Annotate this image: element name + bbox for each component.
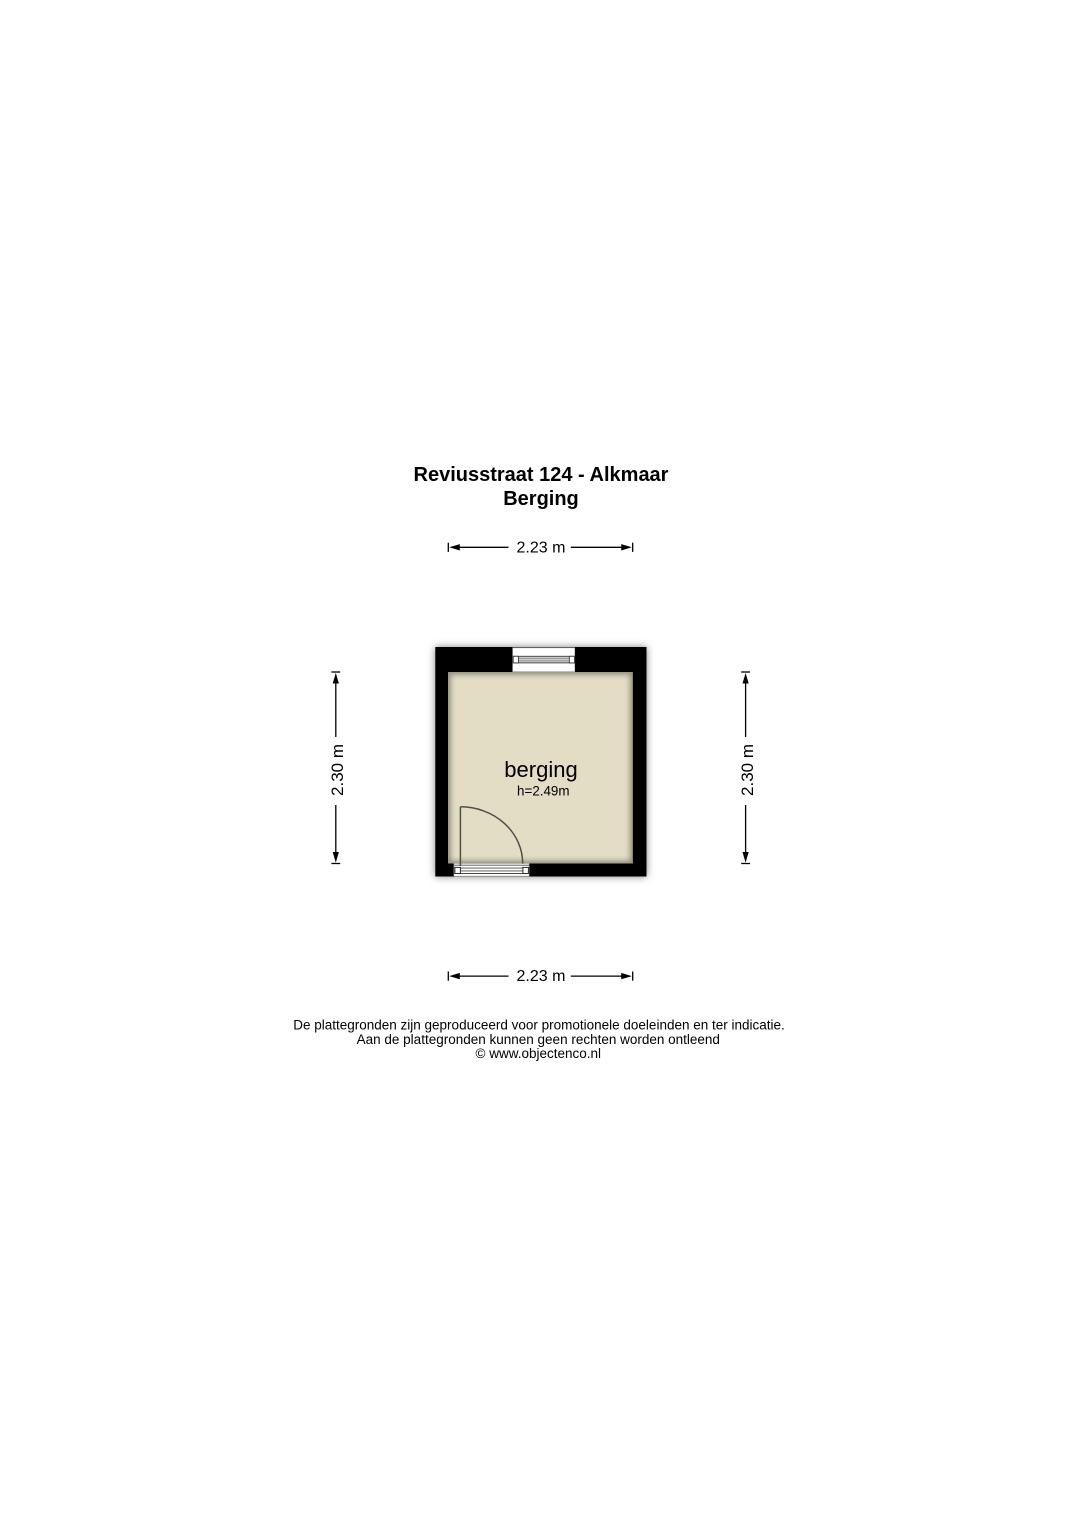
svg-text:Reviusstraat 124 - Alkmaar: Reviusstraat 124 - Alkmaar	[414, 464, 669, 486]
svg-text:2.23 m: 2.23 m	[517, 539, 566, 556]
svg-text:2.30 m: 2.30 m	[738, 744, 757, 796]
svg-text:De plattegronden zijn geproduc: De plattegronden zijn geproduceerd voor …	[293, 1017, 785, 1032]
svg-text:h=2.49m: h=2.49m	[517, 783, 569, 798]
svg-text:Berging: Berging	[503, 488, 579, 510]
svg-text:2.30 m: 2.30 m	[328, 744, 347, 796]
svg-text:© www.objectenco.nl: © www.objectenco.nl	[476, 1046, 602, 1061]
svg-text:Aan de plattegronden kunnen ge: Aan de plattegronden kunnen geen rechten…	[357, 1032, 720, 1047]
svg-text:2.23 m: 2.23 m	[517, 968, 566, 985]
svg-text:berging: berging	[504, 757, 577, 782]
